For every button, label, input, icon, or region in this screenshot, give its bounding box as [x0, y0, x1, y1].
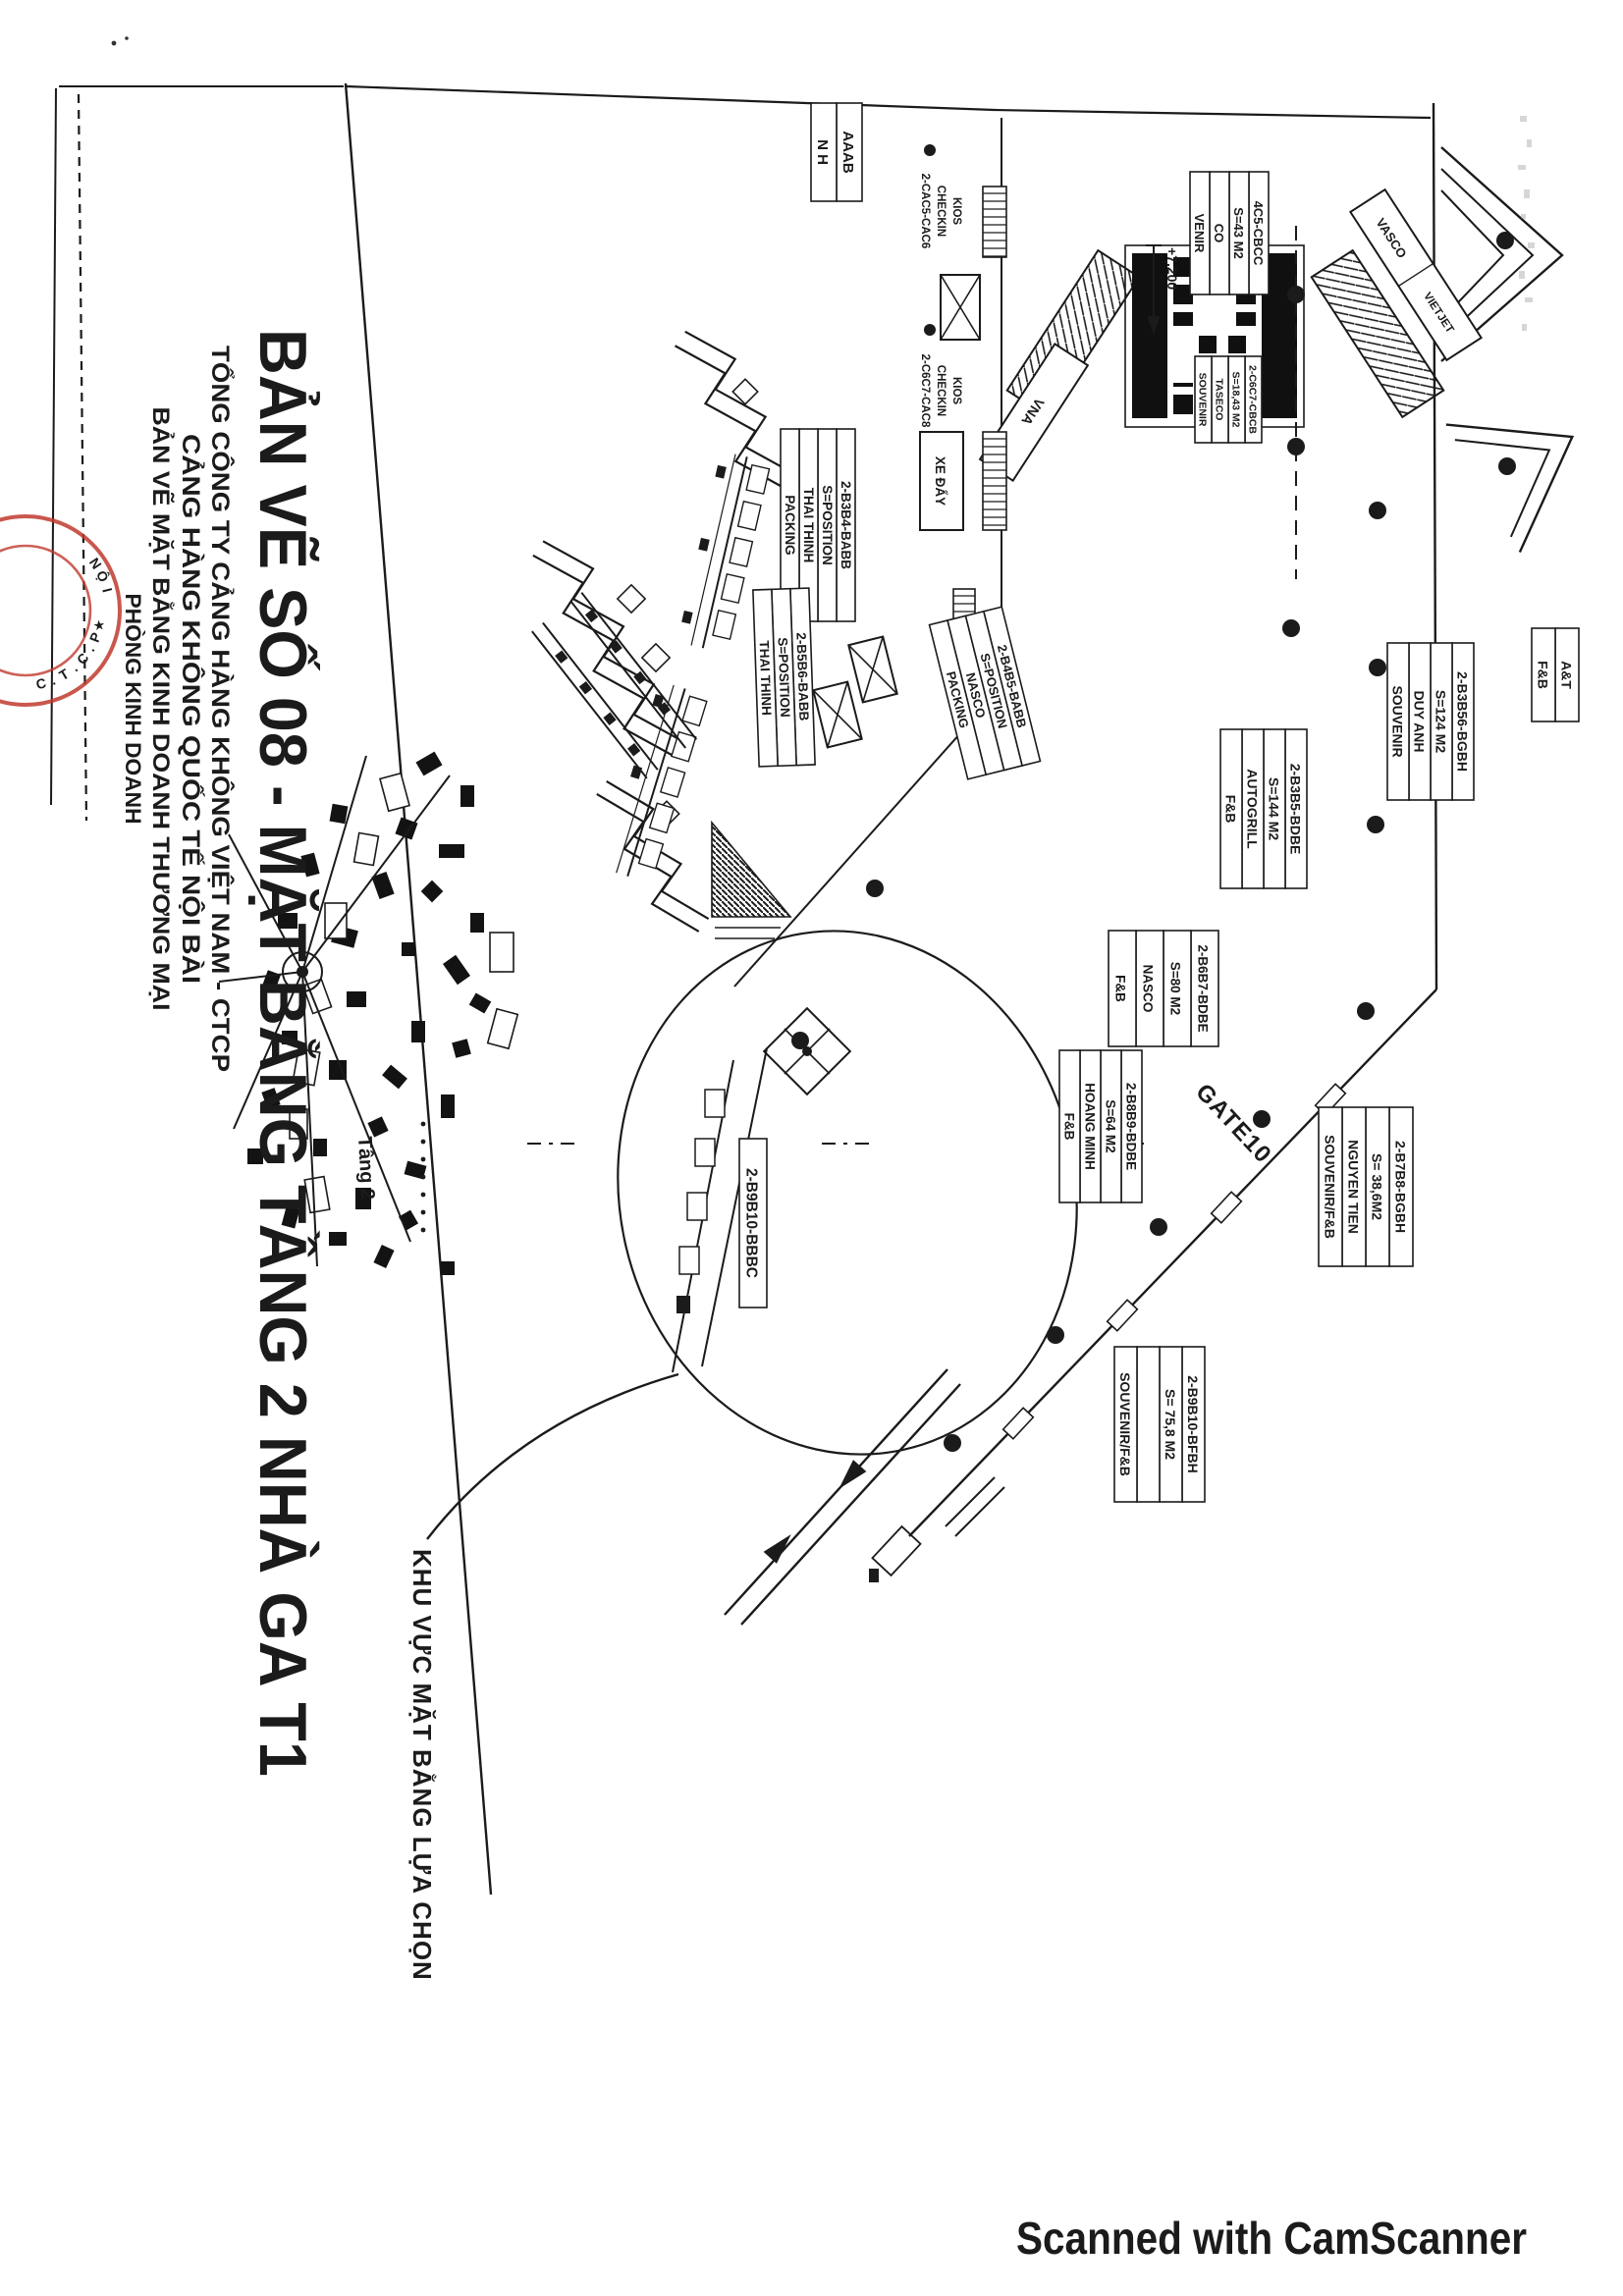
unit-label-aaab: AAABN H	[811, 103, 862, 201]
unit-label-text: SOUVENIR/F&B	[1322, 1135, 1337, 1239]
unit-label-text: F&B	[1223, 795, 1239, 824]
unit-label-b9b10-bbbc: 2-B9B10-BBBC	[739, 1139, 767, 1308]
shop-unit-filled	[421, 881, 444, 903]
plan-border-left	[347, 86, 1431, 118]
shop-unit-filled	[415, 752, 442, 776]
unit-label-text: S=18,43 M2	[1229, 372, 1241, 428]
shop-unit	[488, 1009, 518, 1048]
seating-zigzag	[673, 315, 798, 505]
unit-label-text: 2-B9B10-BBBC	[742, 1168, 759, 1278]
gate-door-tick	[1212, 1192, 1242, 1222]
unit-label-text: 2-B8B9-BDBE	[1123, 1083, 1138, 1170]
x-box	[813, 682, 861, 748]
column-dot	[1369, 502, 1386, 519]
shop-unit-filled	[439, 844, 464, 858]
shop-unit-filled	[441, 1261, 455, 1275]
floor-plan-sheet: VASCO VIETJET VNA +7.200 XE ĐẨY	[0, 0, 1623, 2296]
jet-bridge	[725, 1369, 1004, 1625]
unit-label-text: SOUVENIR	[1196, 373, 1208, 427]
x-box	[941, 275, 980, 340]
unit-label-text: S=43 M2	[1231, 207, 1246, 258]
unit-label-a-t-fb: A&TF&B	[1532, 628, 1579, 721]
kiosk-comb	[983, 187, 1006, 257]
unit-label-text: THAI THINH	[801, 488, 816, 563]
company-seal: C.T.C.P★IỘN	[0, 516, 120, 705]
column-dot	[1287, 438, 1305, 455]
shop-unit-filled	[443, 955, 470, 985]
unit-label-duy-anh-b3b56: 2-B3B56-BGBHS=124 M2DUY ANHSOUVENIR	[1387, 643, 1474, 800]
floor-note: Tầng 2	[353, 1136, 378, 1201]
shop-unit	[380, 774, 409, 812]
shop-unit	[354, 832, 379, 865]
shop-unit-filled	[330, 804, 349, 825]
trolley-box: XE ĐẨY	[920, 432, 963, 530]
column-dot	[1367, 816, 1384, 833]
unit-label-text: AUTOGRILL	[1245, 769, 1261, 849]
kiosk-comb	[983, 432, 1006, 530]
unit-label-taseco-c4c5: 4C5-CBCCS=43 M2COVENIR	[1190, 172, 1269, 294]
unit-label-nasco-b6b7: 2-B6B7-BDBES=80 M2NASCOF&B	[1109, 931, 1218, 1046]
shop-unit-filled	[373, 1245, 394, 1268]
column-dot	[1047, 1326, 1064, 1344]
shop-unit	[490, 933, 514, 972]
shop-unit-filled	[469, 992, 492, 1013]
kios-checkin-label: KIOSCHECKIN2-CAC5-CAC6	[919, 144, 962, 248]
shop-unit-filled	[441, 1095, 455, 1118]
header-line-company: TỔNG CÔNG TY CẢNG HÀNG KHÔNG VIỆT NAM - …	[206, 346, 236, 1072]
column-dot	[1282, 619, 1300, 637]
unit-label-souvenir-b9b10: 2-B9B10-BFBHS= 75,8 M2SOUVENIR/F&B	[1114, 1347, 1205, 1502]
seal-char: N	[86, 555, 105, 571]
unit-label-nasco-b4b5: 2-B4B5-BABBS=POSITIONNASCOPACKING	[930, 607, 1041, 779]
camscanner-watermark: Scanned with CamScanner	[1016, 2213, 1527, 2264]
elevation-label: +7.200	[1164, 247, 1180, 290]
shop-unit-filled	[329, 1232, 347, 1246]
roof-chevron-icon	[1446, 373, 1609, 552]
column-dot	[1150, 1218, 1167, 1236]
unit-label-text: S=124 M2	[1434, 690, 1449, 753]
unit-label-row	[1137, 1347, 1160, 1502]
unit-label-text: F&B	[1112, 975, 1127, 1002]
unit-label-taseco-c6c7: 2-C6C7-CBCBS=18,43 M2TASECOSOUVENIR	[1195, 356, 1262, 443]
unit-label-text: VENIR	[1192, 214, 1207, 253]
drawing-title: BẢN VẼ SỐ 08 - MẶT BẰNG TẦNG 2 NHÀ GA T1	[245, 329, 321, 1777]
unit-label-text: SOUVENIR/F&B	[1117, 1372, 1133, 1476]
terminal-face-line	[1434, 103, 1436, 989]
wing-spoke	[302, 775, 450, 972]
seal-char: T	[56, 666, 72, 683]
header-line-department: PHÒNG KINH DOANH	[121, 594, 145, 825]
column-dot	[791, 1032, 809, 1049]
title-block: BẢN VẼ SỐ 08 - MẶT BẰNG TẦNG 2 NHÀ GA T1…	[121, 329, 321, 1777]
kios-label-text: 2-C6C7-CAC8	[919, 354, 931, 428]
unit-label-text: S= 75,8 M2	[1163, 1389, 1178, 1460]
unit-label-thai-thinh-b5b6: 2-B5B6-BABBS=POSITIONTHAI THINH	[753, 588, 815, 767]
trolley-label: XE ĐẨY	[933, 456, 947, 506]
unit-label-text: F&B	[1061, 1113, 1076, 1141]
shop-unit-filled	[367, 1116, 388, 1137]
column-dot	[866, 880, 884, 897]
unit-label-text: HOANG MINH	[1082, 1083, 1097, 1170]
unit-label-text: S=POSITION	[776, 637, 793, 718]
unit-label-text: 2-B3B4-BABB	[839, 481, 853, 569]
unit-label-text: THAI THINH	[757, 640, 775, 716]
column-dot	[1369, 659, 1386, 676]
column-dot	[924, 144, 936, 156]
unit-label-text: TASECO	[1213, 379, 1224, 421]
kios-label-text: CHECKIN	[935, 365, 947, 416]
unit-label-text: NASCO	[1140, 965, 1155, 1013]
x-box	[848, 637, 896, 703]
header-line-airport: CẢNG HÀNG KHÔNG QUỐC TẾ NỘI BÀI	[177, 434, 206, 984]
seal-char: ★	[89, 617, 107, 633]
unit-label-nguyen-tien-b7b8: 2-B7B8-BGBHS= 38,6M2NGUYEN TIENSOUVENIR/…	[1319, 1107, 1413, 1266]
scan-dot	[125, 36, 129, 40]
hatched-wedge	[712, 823, 790, 917]
selection-note: KHU VỰC MẶT BẰNG LỰA CHỌN	[407, 1549, 437, 1981]
shop-unit-filled	[460, 785, 474, 807]
counter-row	[602, 681, 708, 883]
unit-label-text: F&B	[1535, 661, 1550, 689]
gate-door-tick	[1108, 1300, 1138, 1330]
kios-label-text: CHECKIN	[935, 186, 947, 237]
rotated-drawing: VASCO VIETJET VNA +7.200 XE ĐẨY	[121, 83, 1609, 1981]
elbow-rotunda	[764, 1008, 850, 1095]
column-dot	[1287, 286, 1305, 303]
column-dot	[1498, 457, 1516, 475]
column-dot	[1357, 1002, 1375, 1020]
shop-unit-filled	[452, 1039, 471, 1058]
unit-label-text: 2-B3B56-BGBH	[1455, 671, 1471, 772]
gate-door-tick	[1003, 1408, 1034, 1438]
unit-label-text: NGUYEN TIEN	[1345, 1140, 1361, 1234]
unit-label-text: 2-C6C7-CBCB	[1246, 365, 1258, 434]
unit-label-text: 2-B6B7-BDBE	[1195, 944, 1210, 1032]
unit-label-text: 2-B9B10-BFBH	[1185, 1375, 1201, 1473]
shop-unit-filled	[395, 817, 417, 839]
unit-label-text: 4C5-CBCC	[1251, 201, 1266, 266]
unit-label-text: S=POSITION	[820, 485, 835, 564]
shop-unit	[325, 903, 347, 938]
scan-dot	[112, 41, 117, 46]
kios-label-text: 2-CAC5-CAC6	[919, 174, 931, 249]
selection-ellipse	[569, 888, 1124, 1498]
unit-label-text: AAAB	[839, 131, 856, 173]
gate-wing: GATE10	[527, 823, 1345, 1625]
unit-label-text: CO	[1212, 224, 1226, 243]
seal-char: C	[34, 674, 47, 692]
scanned-drawing-page: VASCO VIETJET VNA +7.200 XE ĐẨY	[0, 0, 1623, 2296]
column-dot	[944, 1434, 961, 1452]
kios-label-text: KIOS	[950, 197, 962, 225]
unit-label-text: N H	[814, 139, 831, 165]
kios-label-text: KIOS	[950, 377, 962, 404]
unit-label-text: 2-B5B6-BABB	[793, 632, 811, 721]
column-dot	[924, 324, 936, 336]
unit-label-text: SOUVENIR	[1390, 685, 1406, 757]
unit-label-text: 2-B3B5-BDBE	[1288, 764, 1304, 855]
header-line-drawing: BẢN VẼ MẶT BẰNG KINH DOANH THƯƠNG MẠI	[147, 407, 176, 1011]
unit-label-text: A&T	[1558, 661, 1574, 689]
unit-label-text: S=80 M2	[1167, 962, 1182, 1015]
seal-char: I	[99, 586, 115, 594]
shop-unit-filled	[347, 991, 366, 1007]
unit-label-text: S=144 M2	[1267, 777, 1282, 840]
shop-unit-filled	[411, 1021, 425, 1042]
unit-label-hoang-minh-b8b9: 2-B8B9-BDBES=64 M2HOANG MINHF&B	[1059, 1050, 1142, 1202]
unit-label-text: 2-B7B8-BGBH	[1392, 1141, 1408, 1233]
shop-unit-filled	[382, 1065, 407, 1090]
unit-label-text: DUY ANH	[1412, 690, 1428, 752]
unit-label-autogrill-b3b5: 2-B3B5-BDBES=144 M2AUTOGRILLF&B	[1220, 729, 1307, 888]
shop-unit-filled	[402, 942, 415, 956]
unit-label-text: S= 38,6M2	[1369, 1153, 1384, 1220]
column-dot	[1496, 232, 1514, 249]
unit-label-text: PACKING	[783, 495, 797, 555]
column-dot	[1253, 1110, 1271, 1128]
shop-unit-filled	[470, 913, 484, 933]
unit-label-text: S=64 M2	[1103, 1099, 1117, 1152]
selection-note-group: KHU VỰC MẶT BẰNG LỰA CHỌN	[407, 1374, 678, 1981]
